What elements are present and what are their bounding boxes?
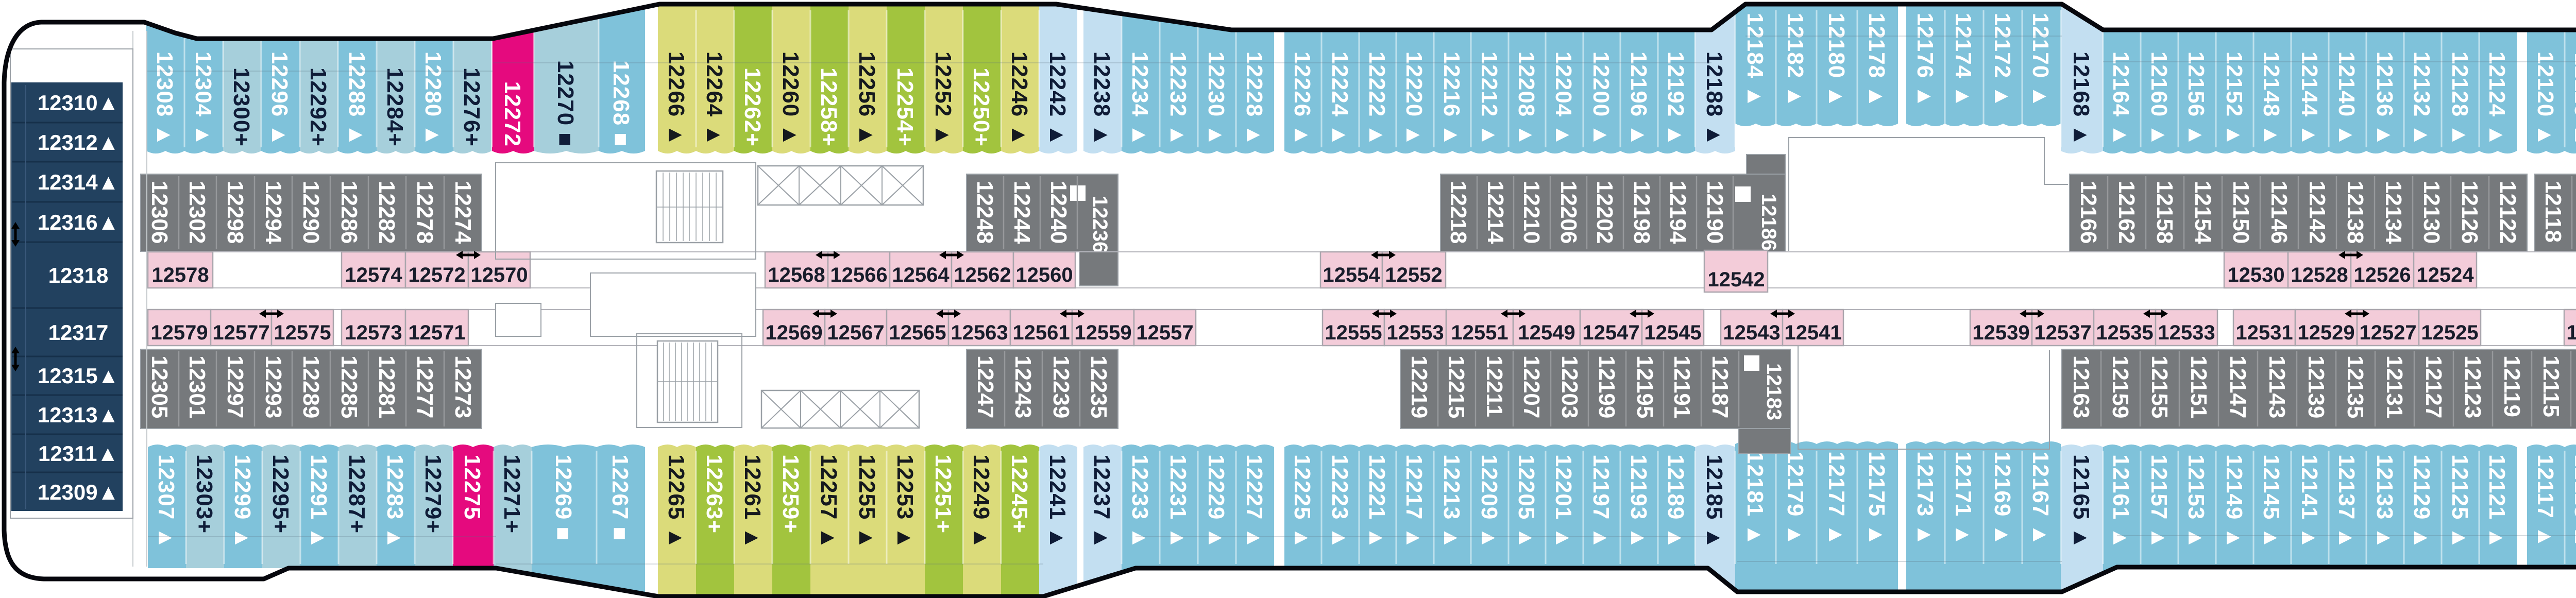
svg-text:12525: 12525: [2421, 321, 2478, 344]
svg-text:12199: 12199: [1594, 355, 1619, 418]
svg-text:12115: 12115: [2538, 355, 2564, 417]
svg-text:12119: 12119: [2499, 355, 2524, 417]
svg-text:12208 ▲: 12208 ▲: [1514, 52, 1539, 147]
svg-text:12194: 12194: [1665, 181, 1690, 244]
svg-text:12180 ▲: 12180 ▲: [1824, 13, 1849, 108]
svg-text:12116 ▲: 12116 ▲: [2570, 53, 2576, 147]
svg-text:12286: 12286: [336, 181, 362, 244]
svg-text:12189 ▲: 12189 ▲: [1663, 454, 1688, 550]
svg-text:12263+: 12263+: [702, 454, 727, 534]
svg-text:12163: 12163: [2069, 355, 2094, 418]
svg-text:12297: 12297: [223, 355, 248, 418]
svg-text:12220 ▲: 12220 ▲: [1401, 52, 1427, 147]
svg-text:12539: 12539: [1972, 321, 2029, 344]
svg-text:12122: 12122: [2495, 181, 2520, 244]
svg-text:12206: 12206: [1556, 181, 1581, 244]
svg-text:12276+: 12276+: [459, 67, 484, 147]
svg-text:12188 ▲: 12188 ▲: [1702, 52, 1727, 147]
svg-text:12302: 12302: [184, 181, 210, 244]
svg-text:12140 ▲: 12140 ▲: [2334, 52, 2359, 147]
svg-text:12196 ▲: 12196 ▲: [1626, 52, 1651, 147]
svg-text:12159: 12159: [2108, 355, 2133, 418]
svg-text:12248: 12248: [972, 181, 997, 244]
svg-text:12240: 12240: [1046, 181, 1071, 244]
svg-text:12169 ▲: 12169 ▲: [1990, 451, 2015, 546]
svg-text:12523: 12523: [2566, 321, 2576, 344]
svg-text:12272: 12272: [500, 81, 525, 147]
svg-text:12288 ▲: 12288 ▲: [344, 52, 369, 147]
svg-text:12310▲: 12310▲: [38, 91, 119, 115]
svg-text:12190: 12190: [1702, 181, 1727, 244]
svg-text:12241 ▲: 12241 ▲: [1045, 454, 1070, 550]
svg-text:12549: 12549: [1518, 321, 1575, 344]
svg-text:12277: 12277: [412, 355, 437, 418]
svg-text:12216 ▲: 12216 ▲: [1439, 52, 1464, 147]
svg-text:12273: 12273: [450, 355, 476, 418]
svg-text:12301: 12301: [184, 355, 210, 418]
svg-text:12227 ▲: 12227 ▲: [1242, 454, 1267, 550]
svg-text:12233 ▲: 12233 ▲: [1127, 454, 1153, 550]
svg-text:12567: 12567: [827, 321, 884, 344]
svg-text:12218: 12218: [1446, 181, 1471, 244]
svg-text:12113 ▲: 12113 ▲: [2570, 454, 2576, 549]
svg-text:12243: 12243: [1010, 355, 1036, 418]
svg-text:12278: 12278: [412, 181, 437, 244]
svg-text:12547: 12547: [1582, 321, 1639, 344]
svg-text:12167 ▲: 12167 ▲: [2028, 451, 2053, 546]
svg-text:12306: 12306: [147, 181, 172, 244]
svg-text:12316▲: 12316▲: [38, 210, 119, 234]
svg-text:12545: 12545: [1644, 321, 1701, 344]
svg-text:12226 ▲: 12226 ▲: [1290, 52, 1315, 147]
svg-text:12165 ▲: 12165 ▲: [2069, 454, 2094, 550]
svg-text:12528: 12528: [2291, 264, 2348, 286]
svg-text:12222 ▲: 12222 ▲: [1364, 52, 1389, 147]
svg-text:12564: 12564: [892, 264, 950, 286]
svg-text:12204 ▲: 12204 ▲: [1551, 52, 1576, 147]
svg-text:12183: 12183: [1762, 363, 1785, 420]
svg-text:12238 ▲: 12238 ▲: [1089, 52, 1114, 147]
svg-text:12531: 12531: [2235, 321, 2293, 344]
svg-text:12128 ▲: 12128 ▲: [2447, 52, 2472, 147]
svg-text:12201 ▲: 12201 ▲: [1551, 454, 1576, 550]
svg-text:12530: 12530: [2227, 264, 2284, 286]
svg-text:12117 ▲: 12117 ▲: [2533, 454, 2558, 549]
svg-text:12209 ▲: 12209 ▲: [1477, 454, 1502, 550]
svg-text:12553: 12553: [1386, 321, 1444, 344]
svg-text:12568: 12568: [768, 264, 825, 286]
svg-text:12293: 12293: [261, 355, 286, 418]
svg-text:12228 ▲: 12228 ▲: [1242, 52, 1267, 147]
svg-text:12268 ■: 12268 ■: [608, 60, 634, 147]
svg-text:12205 ▲: 12205 ▲: [1514, 454, 1539, 550]
svg-text:12225 ▲: 12225 ▲: [1290, 454, 1315, 550]
svg-text:12573: 12573: [345, 321, 402, 344]
svg-text:12200 ▲: 12200 ▲: [1588, 52, 1614, 147]
svg-text:12526: 12526: [2353, 264, 2411, 286]
svg-text:12533: 12533: [2158, 321, 2215, 344]
svg-text:12127: 12127: [2421, 355, 2446, 418]
svg-text:12537: 12537: [2034, 321, 2091, 344]
svg-text:12283 ▲: 12283 ▲: [382, 454, 408, 550]
svg-text:12187: 12187: [1707, 355, 1733, 418]
svg-text:12224 ▲: 12224 ▲: [1327, 52, 1352, 147]
svg-text:12314▲: 12314▲: [38, 170, 119, 194]
svg-text:12166: 12166: [2076, 181, 2101, 244]
svg-text:12211: 12211: [1482, 355, 1507, 417]
svg-text:12527: 12527: [2359, 321, 2416, 344]
svg-text:12290: 12290: [298, 181, 324, 244]
svg-text:12186: 12186: [1757, 194, 1780, 251]
svg-text:12172 ▲: 12172 ▲: [1990, 13, 2015, 108]
svg-text:12577: 12577: [212, 321, 269, 344]
svg-text:12543: 12543: [1723, 321, 1780, 344]
svg-text:12244: 12244: [1009, 181, 1035, 244]
svg-text:12170 ▲: 12170 ▲: [2028, 13, 2053, 108]
svg-text:12152 ▲: 12152 ▲: [2222, 52, 2247, 147]
svg-text:12131: 12131: [2382, 355, 2407, 418]
svg-text:12552: 12552: [1385, 264, 1442, 286]
svg-text:12182 ▲: 12182 ▲: [1783, 13, 1808, 108]
svg-text:12298: 12298: [223, 181, 248, 244]
svg-text:12154: 12154: [2190, 181, 2215, 244]
svg-text:12158: 12158: [2152, 181, 2177, 244]
svg-text:12554: 12554: [1323, 264, 1380, 286]
svg-text:12210: 12210: [1519, 181, 1544, 244]
svg-text:12285: 12285: [336, 355, 362, 418]
svg-text:12271+: 12271+: [499, 454, 524, 534]
svg-text:12118: 12118: [2540, 181, 2566, 243]
svg-text:12256 ▲: 12256 ▲: [854, 52, 879, 147]
svg-text:12215: 12215: [1444, 355, 1469, 418]
svg-text:12151: 12151: [2186, 355, 2211, 418]
svg-text:12311▲: 12311▲: [38, 441, 118, 466]
svg-text:12279+: 12279+: [420, 454, 446, 534]
svg-text:12574: 12574: [345, 264, 402, 286]
svg-text:12282: 12282: [374, 181, 399, 244]
svg-text:12312▲: 12312▲: [38, 130, 119, 155]
svg-text:12126: 12126: [2457, 181, 2482, 244]
svg-text:12303+: 12303+: [192, 454, 217, 534]
svg-text:12171 ▲: 12171 ▲: [1951, 451, 1976, 546]
svg-text:12559: 12559: [1074, 321, 1131, 344]
svg-text:12262+: 12262+: [740, 67, 765, 147]
svg-text:12260 ▲: 12260 ▲: [778, 52, 803, 147]
svg-text:12212 ▲: 12212 ▲: [1477, 52, 1502, 147]
svg-text:12160 ▲: 12160 ▲: [2146, 52, 2172, 147]
svg-text:12318: 12318: [48, 263, 109, 287]
svg-text:12254+: 12254+: [892, 67, 918, 147]
svg-text:12144 ▲: 12144 ▲: [2297, 52, 2322, 147]
svg-text:12195: 12195: [1632, 355, 1657, 418]
svg-text:12239: 12239: [1048, 355, 1074, 418]
svg-text:12275: 12275: [460, 454, 485, 520]
svg-text:12265 ▲: 12265 ▲: [664, 454, 689, 550]
svg-text:12267 ■: 12267 ■: [607, 454, 633, 541]
svg-text:12148 ▲: 12148 ▲: [2259, 52, 2284, 147]
svg-text:12257 ▲: 12257 ▲: [816, 454, 841, 550]
svg-text:12542: 12542: [1707, 268, 1765, 291]
svg-text:12524: 12524: [2416, 264, 2474, 286]
svg-text:12147: 12147: [2225, 355, 2250, 418]
svg-text:12557: 12557: [1136, 321, 1193, 344]
svg-text:12230 ▲: 12230 ▲: [1204, 52, 1229, 147]
svg-text:12295+: 12295+: [268, 454, 293, 534]
svg-text:12150: 12150: [2228, 181, 2253, 244]
svg-text:12291 ▲: 12291 ▲: [306, 454, 331, 550]
svg-text:12207: 12207: [1519, 355, 1544, 418]
svg-text:12237 ▲: 12237 ▲: [1089, 454, 1114, 550]
svg-text:12162: 12162: [2114, 181, 2139, 244]
svg-text:12287+: 12287+: [344, 454, 369, 534]
svg-text:12266 ▲: 12266 ▲: [664, 52, 689, 147]
svg-text:12202: 12202: [1592, 181, 1617, 244]
svg-text:12146: 12146: [2266, 181, 2292, 244]
svg-text:12578: 12578: [151, 264, 209, 286]
svg-text:12175 ▲: 12175 ▲: [1864, 451, 1889, 546]
svg-text:12315▲: 12315▲: [38, 364, 119, 388]
svg-text:12155: 12155: [2147, 355, 2172, 418]
svg-text:12181 ▲: 12181 ▲: [1742, 451, 1768, 546]
svg-text:12251+: 12251+: [930, 454, 956, 534]
svg-text:12562: 12562: [954, 264, 1011, 286]
svg-text:12139: 12139: [2303, 355, 2329, 418]
svg-text:12250+: 12250+: [969, 67, 994, 147]
svg-text:12185 ▲: 12185 ▲: [1702, 454, 1727, 550]
svg-text:12242 ▲: 12242 ▲: [1045, 52, 1070, 147]
svg-text:12579: 12579: [150, 321, 208, 344]
svg-text:12264 ▲: 12264 ▲: [702, 52, 727, 147]
svg-text:12130: 12130: [2419, 181, 2444, 244]
svg-text:12289: 12289: [298, 355, 324, 418]
svg-text:12234 ▲: 12234 ▲: [1127, 52, 1153, 147]
svg-text:12529: 12529: [2297, 321, 2354, 344]
svg-text:12176 ▲: 12176 ▲: [1912, 13, 1938, 108]
svg-text:12280 ▲: 12280 ▲: [420, 52, 446, 147]
svg-text:12307 ▲: 12307 ▲: [154, 454, 179, 550]
svg-text:12179 ▲: 12179 ▲: [1783, 451, 1808, 546]
svg-text:12120 ▲: 12120 ▲: [2533, 52, 2558, 147]
svg-text:12572: 12572: [408, 264, 465, 286]
svg-text:12249 ▲: 12249 ▲: [969, 454, 994, 550]
svg-text:12575: 12575: [274, 321, 331, 344]
svg-text:12123: 12123: [2460, 355, 2485, 418]
svg-text:12213 ▲: 12213 ▲: [1439, 454, 1464, 550]
svg-text:12305: 12305: [147, 355, 172, 418]
svg-text:12203: 12203: [1557, 355, 1582, 418]
svg-text:12296 ▲: 12296 ▲: [267, 52, 292, 147]
svg-text:12304 ▲: 12304 ▲: [191, 52, 216, 147]
svg-text:12231 ▲: 12231 ▲: [1165, 454, 1191, 550]
svg-text:12253 ▲: 12253 ▲: [892, 454, 918, 550]
svg-text:12294: 12294: [261, 181, 286, 244]
svg-text:12197 ▲: 12197 ▲: [1588, 454, 1614, 550]
svg-text:12570: 12570: [470, 264, 528, 286]
svg-text:12232 ▲: 12232 ▲: [1165, 52, 1191, 147]
svg-text:12156 ▲: 12156 ▲: [2183, 52, 2209, 147]
svg-text:12255 ▲: 12255 ▲: [854, 454, 879, 550]
svg-text:12177 ▲: 12177 ▲: [1824, 451, 1849, 546]
svg-text:12561: 12561: [1012, 321, 1070, 344]
svg-text:12229 ▲: 12229 ▲: [1204, 454, 1229, 550]
svg-text:12124 ▲: 12124 ▲: [2484, 52, 2510, 147]
svg-text:12259+: 12259+: [778, 454, 803, 534]
svg-text:12138: 12138: [2343, 181, 2368, 244]
svg-text:12569: 12569: [765, 321, 822, 344]
svg-text:12164 ▲: 12164 ▲: [2108, 52, 2133, 147]
svg-text:12300+: 12300+: [229, 67, 254, 147]
svg-text:12258+: 12258+: [816, 67, 841, 147]
svg-text:12284+: 12284+: [382, 67, 408, 147]
svg-text:12313▲: 12313▲: [38, 403, 119, 427]
svg-text:12245+: 12245+: [1007, 454, 1032, 534]
svg-text:12184 ▲: 12184 ▲: [1742, 13, 1768, 108]
svg-text:12136 ▲: 12136 ▲: [2372, 52, 2397, 147]
svg-text:12143: 12143: [2264, 355, 2290, 418]
svg-text:12168 ▲: 12168 ▲: [2069, 52, 2094, 147]
svg-text:12541: 12541: [1784, 321, 1841, 344]
svg-text:12551: 12551: [1451, 321, 1508, 344]
svg-text:12560: 12560: [1015, 264, 1073, 286]
svg-text:12142: 12142: [2304, 181, 2330, 244]
svg-text:12236: 12236: [1089, 196, 1111, 253]
svg-text:12563: 12563: [951, 321, 1008, 344]
svg-text:12246 ▲: 12246 ▲: [1007, 52, 1032, 147]
svg-text:12308 ▲: 12308 ▲: [152, 52, 177, 147]
svg-text:12281: 12281: [374, 355, 399, 418]
svg-text:12247: 12247: [973, 355, 998, 418]
svg-text:12219: 12219: [1406, 355, 1432, 418]
svg-text:12192 ▲: 12192 ▲: [1663, 52, 1688, 147]
svg-text:12270 ■: 12270 ■: [553, 60, 578, 147]
svg-text:12132 ▲: 12132 ▲: [2409, 52, 2434, 147]
svg-text:12252 ▲: 12252 ▲: [930, 52, 956, 147]
svg-text:12178 ▲: 12178 ▲: [1864, 13, 1889, 108]
svg-text:12299 ▲: 12299 ▲: [230, 454, 255, 550]
svg-text:12217 ▲: 12217 ▲: [1401, 454, 1427, 550]
svg-text:12223 ▲: 12223 ▲: [1327, 454, 1352, 550]
svg-text:12173 ▲: 12173 ▲: [1912, 451, 1938, 546]
svg-text:12571: 12571: [408, 321, 465, 344]
svg-text:12317: 12317: [48, 320, 109, 345]
svg-text:12193 ▲: 12193 ▲: [1626, 454, 1651, 550]
svg-text:12174 ▲: 12174 ▲: [1951, 13, 1976, 108]
svg-text:12269 ■: 12269 ■: [551, 454, 576, 541]
svg-text:12274: 12274: [450, 181, 476, 244]
svg-text:12214: 12214: [1483, 181, 1508, 244]
svg-text:12535: 12535: [2096, 321, 2153, 344]
svg-text:12235: 12235: [1086, 355, 1111, 418]
svg-text:12566: 12566: [830, 264, 887, 286]
svg-text:12134: 12134: [2381, 181, 2406, 244]
svg-text:12198: 12198: [1629, 181, 1654, 244]
svg-text:12261 ▲: 12261 ▲: [740, 454, 765, 550]
svg-text:12565: 12565: [889, 321, 946, 344]
svg-text:12135: 12135: [2343, 355, 2368, 418]
svg-text:12191: 12191: [1669, 355, 1694, 418]
svg-text:12309▲: 12309▲: [38, 480, 119, 504]
svg-text:12221 ▲: 12221 ▲: [1364, 454, 1389, 550]
svg-text:12292+: 12292+: [306, 67, 331, 147]
svg-text:12555: 12555: [1325, 321, 1382, 344]
